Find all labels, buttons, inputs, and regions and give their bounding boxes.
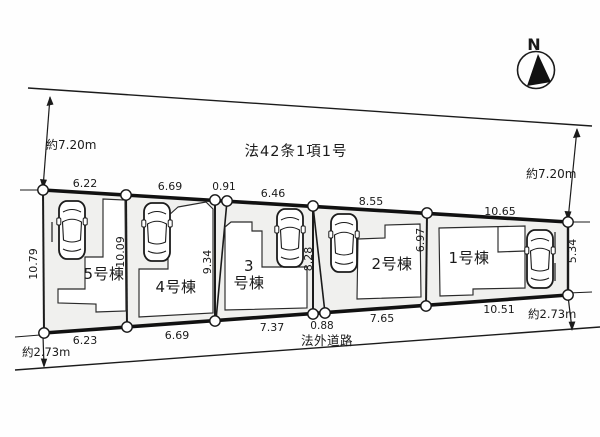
arrowhead — [573, 128, 581, 138]
dim-bottom-lot3: 7.37 — [260, 321, 285, 334]
lot-label-5: 5号棟 — [83, 265, 124, 283]
dim-depth-lot2-lot1: 6.97 — [414, 228, 427, 253]
north-road-width-left-label: 約7.20m — [46, 137, 96, 152]
north-road-width-right-label: 約7.20m — [526, 166, 576, 181]
car-lot1 — [525, 230, 555, 288]
site-plan-page: 法42条1項1号 法外道路 約7.20m 約7.20m 約2.73m 約2.73… — [0, 0, 600, 437]
dim-top-gap: 0.91 — [212, 181, 235, 193]
car-lot4 — [142, 203, 172, 261]
survey-marker — [121, 190, 131, 200]
arrowhead — [41, 359, 47, 369]
north-compass: N — [518, 35, 555, 89]
lot-label-2: 2号棟 — [371, 255, 412, 273]
survey-marker — [422, 208, 432, 218]
south-road-width-right-label: 約2.73m — [528, 307, 576, 321]
survey-marker — [222, 196, 232, 206]
arrowhead — [47, 96, 54, 106]
survey-marker — [38, 185, 48, 195]
survey-marker — [210, 316, 220, 326]
site-plan-drawing: 法42条1項1号 法外道路 約7.20m 約7.20m 約2.73m 約2.73… — [0, 0, 600, 437]
dim-depth-lot3-right: 8.28 — [302, 247, 315, 272]
dim-bottom-lot5: 6.23 — [73, 334, 98, 347]
south-road-name-label: 法外道路 — [301, 333, 353, 348]
dim-top-lot4: 6.69 — [158, 180, 183, 193]
dim-bottom-gap: 0.88 — [310, 320, 333, 332]
survey-marker — [320, 308, 330, 318]
extension-tick — [15, 335, 40, 337]
dim-top-lot3: 6.46 — [261, 187, 286, 200]
dim-bottom-lot4: 6.69 — [165, 329, 190, 342]
car-lot3 — [275, 209, 305, 267]
survey-marker — [563, 290, 573, 300]
lot-label-4: 4号棟 — [155, 278, 196, 296]
car-lot2 — [329, 214, 359, 272]
dim-top-lot1: 10.65 — [484, 205, 516, 218]
dim-top-lot5: 6.22 — [73, 177, 98, 190]
dim-depth-lot3-left: 9.34 — [201, 250, 214, 275]
north-road: 法42条1項1号 — [28, 88, 592, 160]
survey-marker — [210, 195, 220, 205]
dim-bottom-lot1: 10.51 — [483, 303, 515, 316]
survey-marker — [122, 322, 132, 332]
compass-needle-icon — [527, 54, 551, 86]
lot-label-1: 1号棟 — [448, 249, 489, 267]
dim-bottom-lot2: 7.65 — [370, 312, 395, 325]
dim-depth-lot5-lot4: 10.09 — [114, 236, 127, 268]
boundary-lot2-lot1 — [426, 213, 427, 306]
boundary-lot5-left — [43, 190, 44, 333]
survey-marker — [563, 217, 573, 227]
car-lot5 — [57, 201, 87, 259]
survey-marker — [39, 328, 49, 338]
dim-depth-lot1-right: 5.34 — [566, 239, 579, 264]
dim-top-lot2: 8.55 — [359, 195, 384, 208]
dim-depth-lot5-left: 10.79 — [27, 248, 40, 280]
lot-label-3-line1: 3 — [244, 257, 254, 275]
south-road-width-left-label: 約2.73m — [22, 345, 70, 359]
north-road-designation-label: 法42条1項1号 — [245, 143, 348, 160]
lot-label-3-line2: 号棟 — [233, 274, 264, 292]
survey-marker — [421, 301, 431, 311]
survey-marker — [308, 309, 318, 319]
survey-marker — [308, 201, 318, 211]
north-road-edge-line — [28, 88, 592, 126]
south-road: 法外道路 — [15, 327, 600, 370]
